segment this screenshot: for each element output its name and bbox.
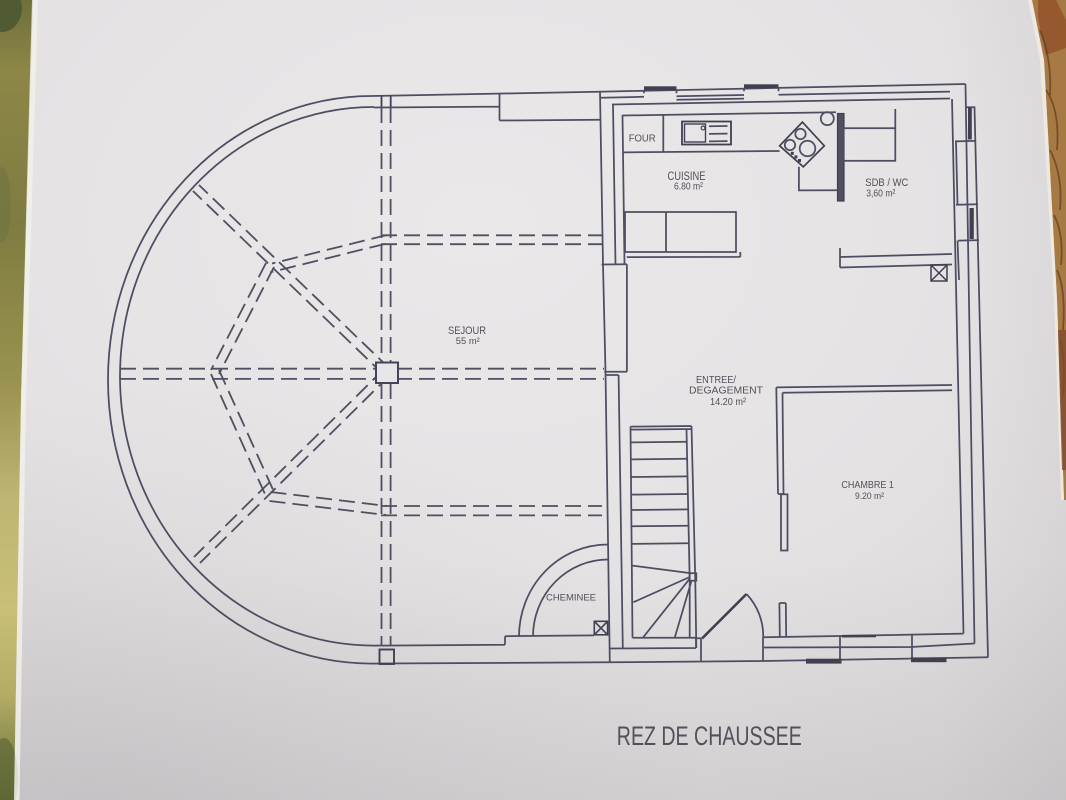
svg-text:55 m²: 55 m² (456, 336, 480, 347)
svg-text:REZ DE CHAUSSEE: REZ DE CHAUSSEE (617, 721, 802, 751)
svg-text:DEGAGEMENT: DEGAGEMENT (689, 386, 763, 397)
svg-text:3,60 m²: 3,60 m² (866, 189, 896, 200)
svg-text:FOUR: FOUR (629, 133, 656, 145)
svg-text:ENTREE/: ENTREE/ (696, 375, 736, 386)
svg-text:6.80 m²: 6.80 m² (674, 182, 704, 193)
svg-text:14.20 m²: 14.20 m² (710, 397, 747, 408)
svg-text:CHAMBRE 1: CHAMBRE 1 (841, 479, 894, 491)
svg-text:CHEMINEE: CHEMINEE (546, 593, 596, 603)
svg-text:9.20 m²: 9.20 m² (855, 491, 884, 502)
svg-text:SDB / WC: SDB / WC (865, 177, 908, 189)
